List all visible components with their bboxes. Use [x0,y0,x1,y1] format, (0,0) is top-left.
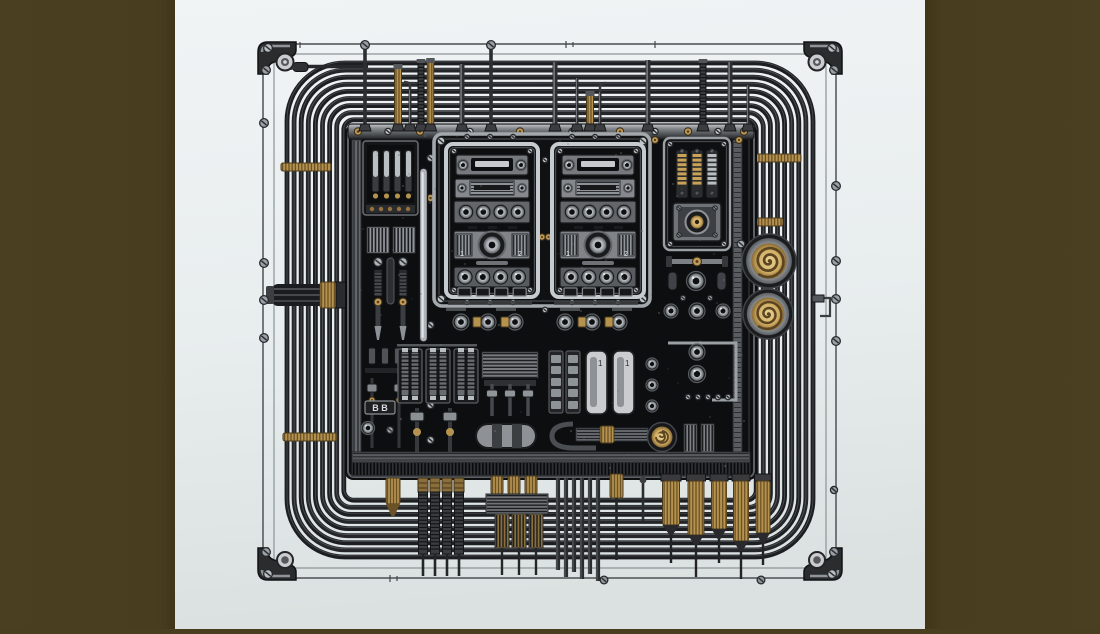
svg-text:1: 1 [566,251,570,258]
svg-text:2: 2 [624,251,628,258]
svg-text:1: 1 [625,359,630,368]
svg-text:1: 1 [460,251,464,258]
svg-text:1: 1 [598,359,603,368]
svg-text:B B: B B [372,403,388,413]
svg-text:2: 2 [518,251,522,258]
